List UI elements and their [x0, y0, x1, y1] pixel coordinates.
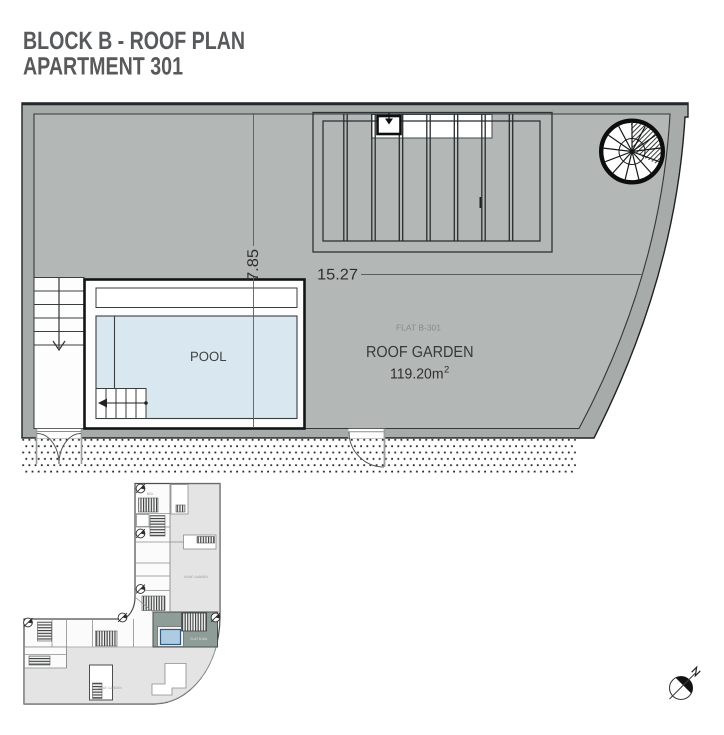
svg-text:2: 2: [444, 365, 449, 376]
svg-text:FLAT B-301: FLAT B-301: [191, 637, 208, 641]
svg-text:BLOCK B - ROOF PLAN: BLOCK B - ROOF PLAN: [23, 27, 245, 55]
svg-text:ROOF GARDEN: ROOF GARDEN: [366, 344, 474, 361]
svg-text:ROOF GARDEN: ROOF GARDEN: [98, 686, 122, 690]
svg-text:15.27: 15.27: [317, 267, 358, 284]
svg-text:ROOF GARDEN: ROOF GARDEN: [184, 575, 208, 579]
svg-text:7.85: 7.85: [245, 249, 262, 281]
svg-text:POOL: POOL: [190, 349, 227, 364]
svg-text:119.20m: 119.20m: [390, 367, 444, 383]
svg-text:FLAT B-301: FLAT B-301: [396, 323, 441, 333]
svg-text:APARTMENT 301: APARTMENT 301: [23, 53, 183, 81]
svg-text:BED: BED: [147, 492, 154, 496]
